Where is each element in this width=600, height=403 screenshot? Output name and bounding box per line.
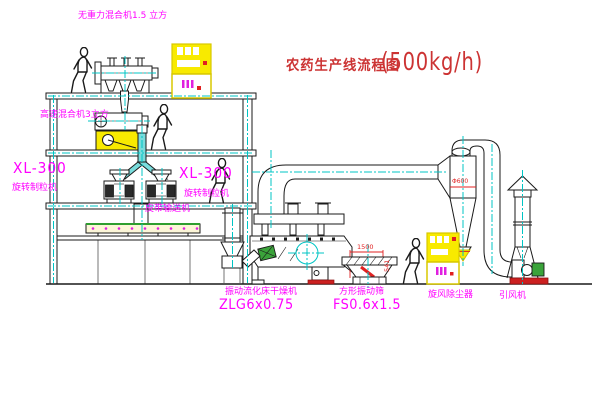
dim-sieve-length: 1500 — [357, 244, 374, 251]
label-cyclone: 旋风除尘器 — [428, 291, 473, 300]
control-cabinet-upper — [172, 44, 211, 98]
label-sieve-name: 方形振动筛 — [339, 288, 384, 297]
belt-conveyor — [86, 224, 200, 236]
label-dryer-model: ZLG6x0.75 — [219, 298, 294, 312]
label-dryer-name: 振动流化床干燥机 — [225, 288, 297, 297]
exhaust-duct — [258, 156, 450, 216]
dim-cyclone-diameter: Φ600 — [452, 179, 468, 185]
person-figure — [152, 104, 172, 149]
label-granulator-right-name: 旋转制粒机 — [184, 190, 229, 199]
label-granulator-left-model: XL-300 — [13, 161, 67, 176]
induced-draft-fan — [510, 260, 548, 284]
gravity-free-mixer — [95, 58, 158, 112]
diagram-capacity: (500kg/h) — [381, 47, 483, 76]
person-figure — [72, 47, 92, 92]
label-high-speed-mixer: 高速混合机3立方 — [40, 111, 109, 120]
dim-sieve-height: 541 — [384, 260, 391, 272]
fluid-bed-dryer — [250, 203, 356, 284]
label-sieve-model: FS0.6x1.5 — [333, 298, 401, 312]
granulator-right — [146, 170, 176, 203]
label-granulator-left-name: 旋转制粒机 — [12, 184, 57, 193]
flow-diagram: 农药生产线流程图 (500kg/h) 无重力混合机1.5 立方 高速混合机3立方… — [0, 0, 600, 403]
label-fan: 引风机 — [499, 292, 526, 301]
control-cabinet-lower — [427, 233, 459, 284]
label-granulator-right-model: XL-300 — [179, 166, 233, 181]
person-figure — [404, 238, 424, 283]
label-gravity-free-mixer: 无重力混合机1.5 立方 — [78, 12, 167, 21]
label-belt-conveyor: 皮带输送机 — [145, 205, 190, 214]
